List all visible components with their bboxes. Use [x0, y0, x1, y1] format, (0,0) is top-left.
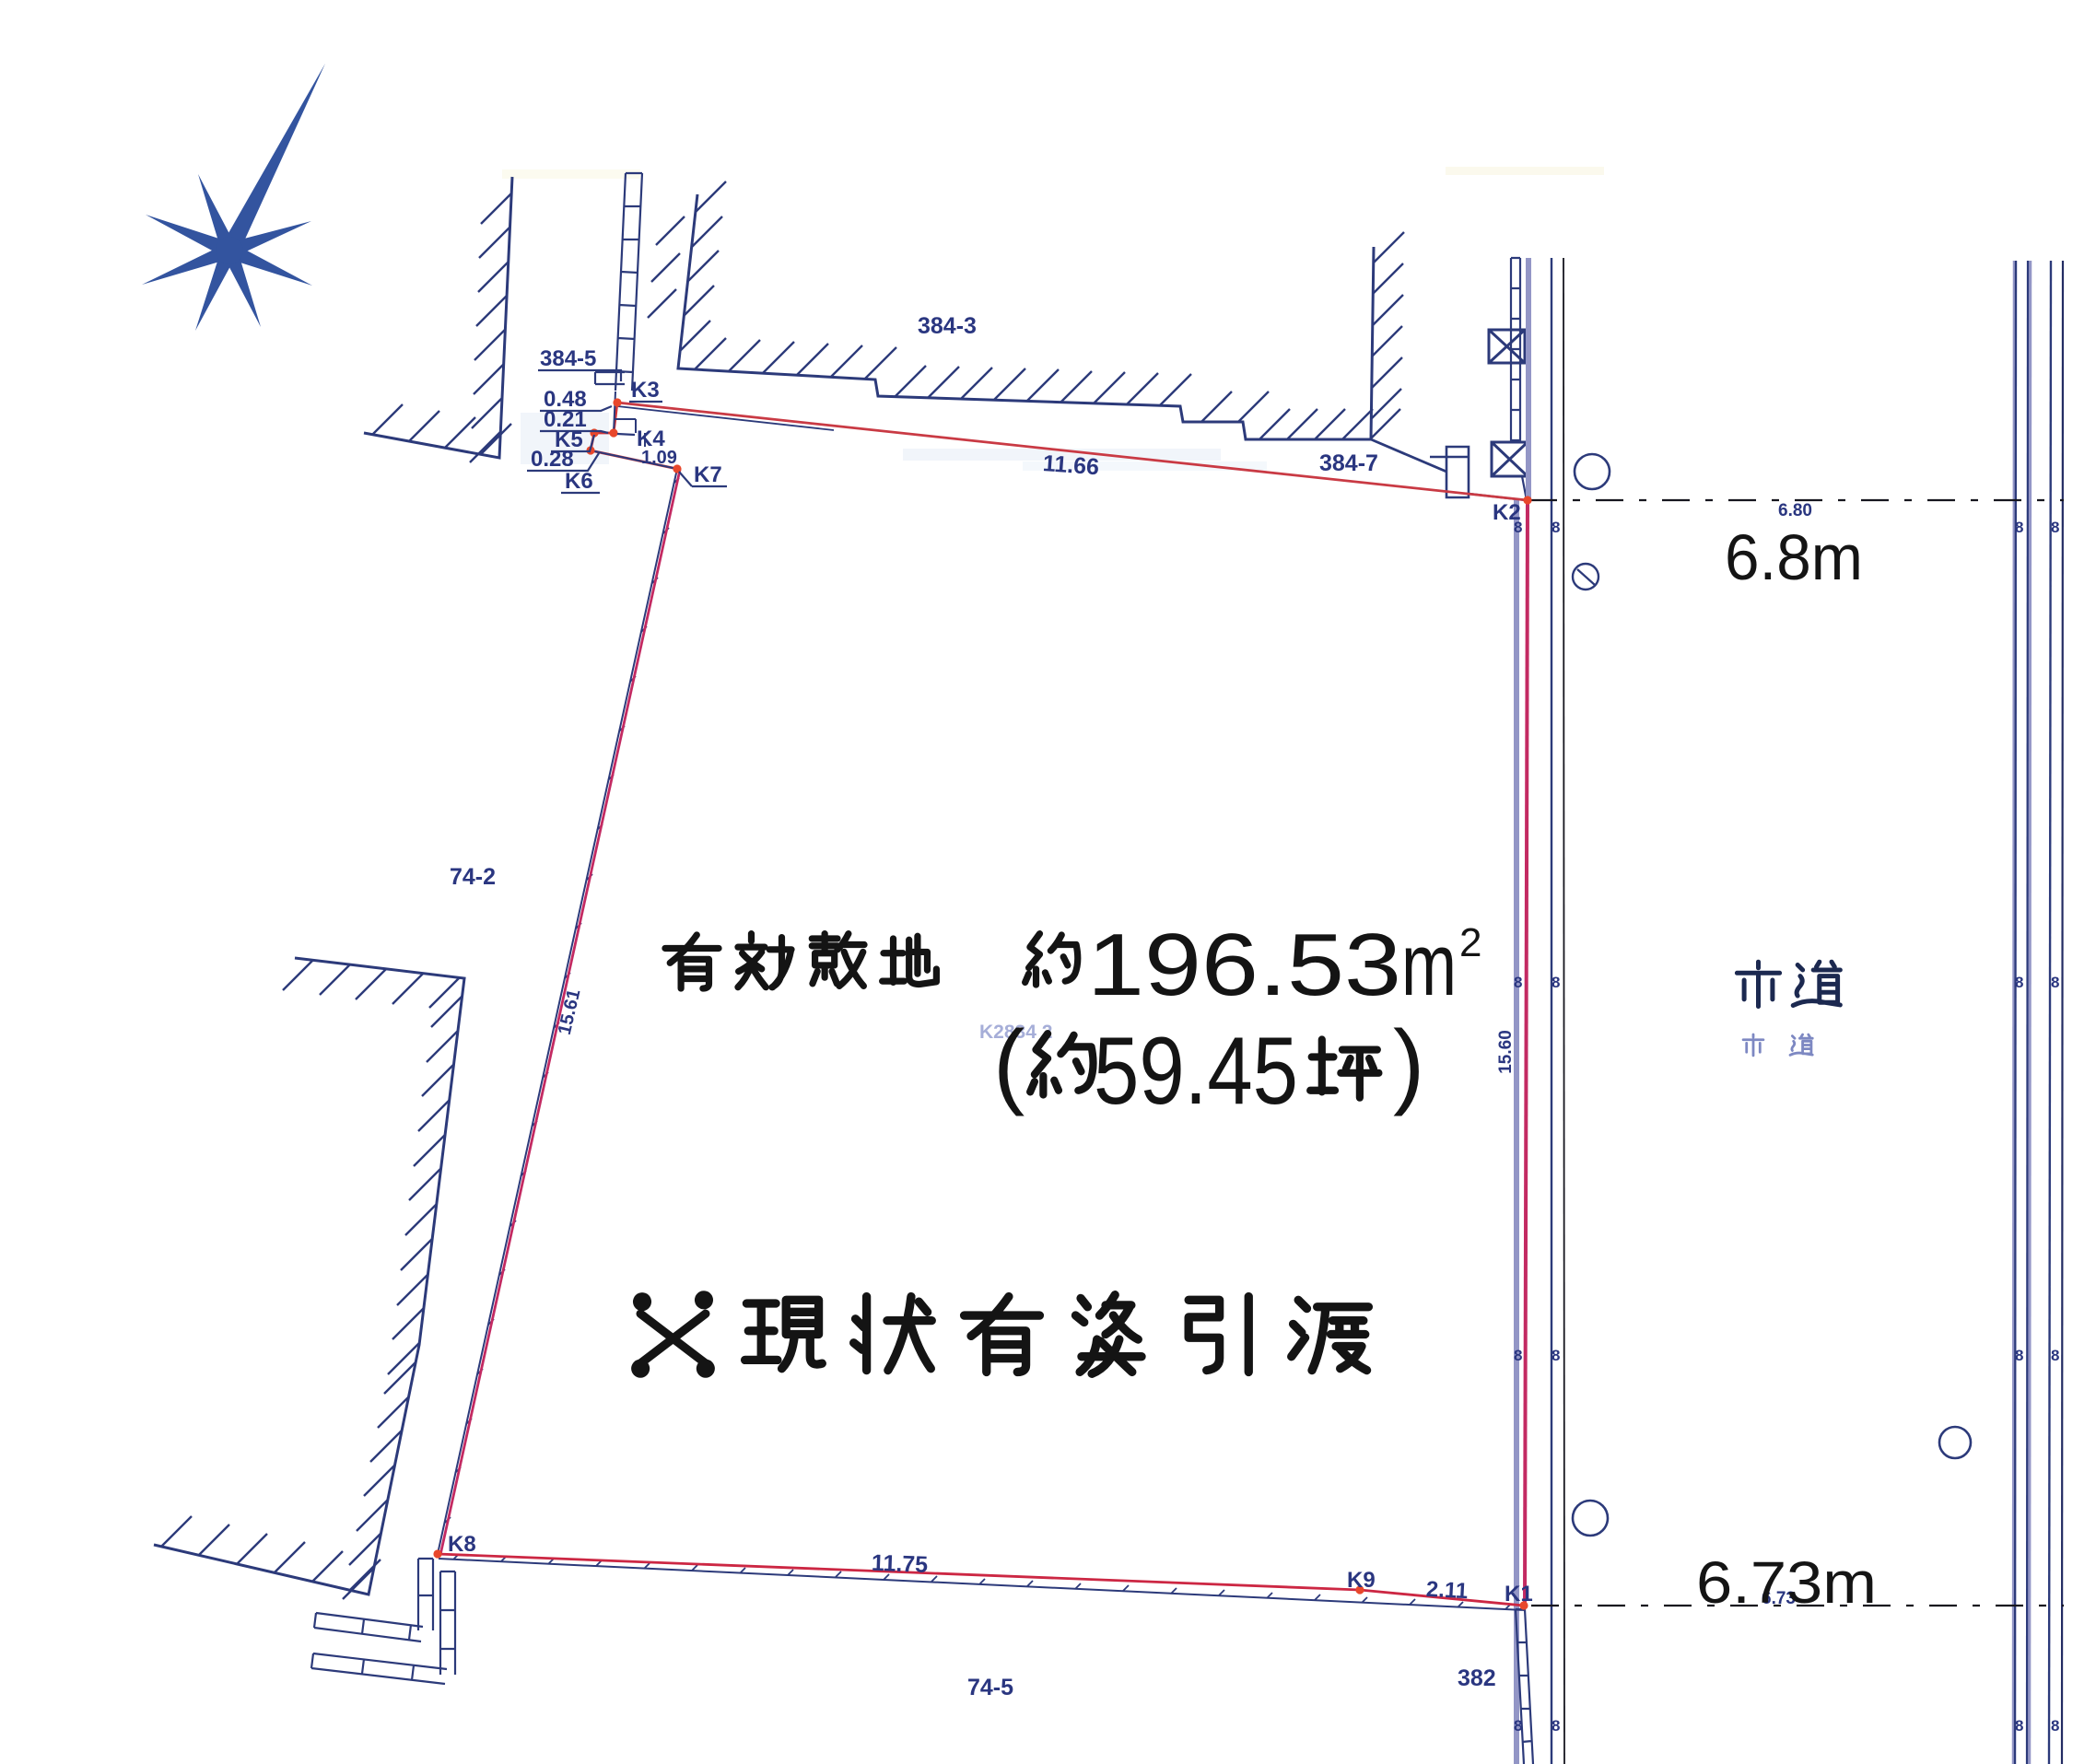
svg-text:8: 8	[2015, 519, 2023, 536]
svg-text:8: 8	[1514, 974, 1522, 991]
svg-text:8: 8	[2015, 1717, 2023, 1735]
svg-text:8: 8	[2015, 974, 2023, 991]
svg-text:8: 8	[2051, 1717, 2059, 1735]
svg-text:2.11: 2.11	[1425, 1577, 1469, 1604]
svg-text:(: (	[993, 1011, 1025, 1116]
svg-text:196.53: 196.53	[1087, 916, 1401, 1014]
svg-text:K9: K9	[1347, 1568, 1376, 1593]
svg-text:384-5: 384-5	[540, 346, 596, 371]
svg-text:74-2: 74-2	[450, 864, 496, 890]
svg-text:8: 8	[1552, 519, 1560, 536]
svg-text:6.80: 6.80	[1778, 501, 1812, 520]
svg-text:6.73m: 6.73m	[1696, 1549, 1877, 1616]
svg-text:K1: K1	[1505, 1582, 1533, 1606]
svg-text:382: 382	[1458, 1665, 1496, 1691]
svg-text:6.8m: 6.8m	[1725, 521, 1863, 593]
svg-text:8: 8	[2051, 974, 2059, 991]
svg-text:8: 8	[2015, 1347, 2023, 1364]
svg-text:2: 2	[1459, 920, 1481, 965]
svg-text:8: 8	[1552, 1347, 1560, 1364]
svg-text:K7: K7	[694, 462, 722, 487]
svg-text:384-7: 384-7	[1319, 450, 1378, 476]
svg-text:0.28: 0.28	[531, 447, 574, 472]
svg-text:11.75: 11.75	[871, 1550, 928, 1578]
svg-text:11.66: 11.66	[1042, 450, 1100, 480]
svg-text:8: 8	[1552, 974, 1560, 991]
svg-text:1.09: 1.09	[641, 448, 677, 468]
svg-text:m: m	[1401, 916, 1457, 1014]
svg-text:74-5: 74-5	[967, 1675, 1013, 1700]
svg-text:K6: K6	[565, 469, 593, 494]
svg-text:K2: K2	[1493, 500, 1521, 525]
svg-text:K3: K3	[631, 378, 660, 403]
svg-text:15.60: 15.60	[1496, 1030, 1516, 1074]
svg-text:K8: K8	[448, 1532, 476, 1557]
svg-text:8: 8	[1514, 1717, 1522, 1735]
svg-text:59.45: 59.45	[1094, 1018, 1298, 1125]
svg-text:384-3: 384-3	[918, 313, 977, 339]
svg-text:8: 8	[1514, 1347, 1522, 1364]
svg-text:): )	[1393, 1011, 1424, 1116]
svg-text:8: 8	[2051, 1347, 2059, 1364]
svg-text:8: 8	[1552, 1717, 1560, 1735]
svg-text:8: 8	[2051, 519, 2059, 536]
